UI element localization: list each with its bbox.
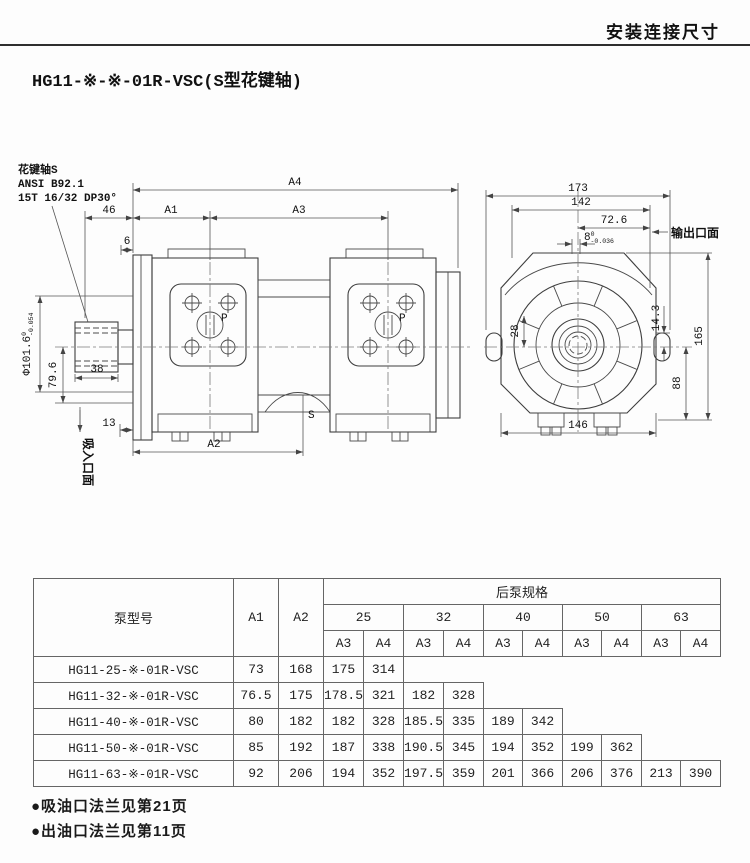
model-cell: HG11-32-※-01R-VSC	[34, 683, 234, 709]
table-row: HG11-40-※-01R-VSC80182182328185.53351893…	[34, 709, 721, 735]
dim-173: 173	[568, 183, 588, 195]
dim-a4: A4	[288, 177, 302, 189]
blank-cell	[404, 657, 721, 683]
dim-146: 146	[568, 420, 588, 432]
dim-a2: A2	[207, 439, 220, 451]
dim-cell: 314	[364, 657, 404, 683]
dim-cell: 352	[364, 761, 404, 787]
a2-cell: 182	[279, 709, 324, 735]
blank-cell	[484, 683, 721, 709]
spline-note-line1: 花键轴S	[18, 162, 58, 177]
catalog-page: 安装连接尺寸 HG11-※-※-01R-VSC(S型花键轴) 花键轴S ANSI…	[0, 0, 750, 863]
blank-cell	[642, 735, 721, 761]
model-cell: HG11-63-※-01R-VSC	[34, 761, 234, 787]
dim-cell: 335	[444, 709, 484, 735]
dim-165: 165	[694, 326, 706, 346]
col-header-a1: A1	[234, 579, 279, 657]
dim-cell: 178.5	[324, 683, 364, 709]
dim-s: S	[308, 410, 315, 422]
a2-cell: 168	[279, 657, 324, 683]
dim-72-6: 72.6	[601, 215, 627, 227]
a1-cell: 92	[234, 761, 279, 787]
dim-cell: 338	[364, 735, 404, 761]
a1-cell: 85	[234, 735, 279, 761]
sub-header: A4	[602, 631, 642, 657]
table-row: HG11-50-※-01R-VSC85192187338190.53451943…	[34, 735, 721, 761]
dim-cell: 328	[444, 683, 484, 709]
col-header-a2: A2	[279, 579, 324, 657]
dim-cell: 376	[602, 761, 642, 787]
dim-cell: 185.5	[404, 709, 444, 735]
outlet-face-label: 输出口面	[671, 225, 719, 240]
sub-header: A4	[444, 631, 484, 657]
spec-table: 泵型号 A1 A2 后泵规格 2532405063 A3A4A3A4A3A4A3…	[33, 578, 721, 787]
dim-cell: 182	[324, 709, 364, 735]
dim-79-6: 79.6	[48, 362, 60, 388]
dim-6: 6	[124, 236, 131, 248]
dim-cell: 206	[563, 761, 602, 787]
suction-face-label: 吸入口面	[81, 438, 95, 486]
sub-header: A3	[324, 631, 364, 657]
a1-cell: 80	[234, 709, 279, 735]
dim-a3: A3	[292, 205, 305, 217]
dim-dia101: Φ101.60-0.054	[21, 312, 35, 375]
dim-cell: 345	[444, 735, 484, 761]
dim-a1: A1	[164, 205, 178, 217]
dim-cell: 359	[444, 761, 484, 787]
a1-cell: 76.5	[234, 683, 279, 709]
spline-note-line2: ANSI B92.1	[18, 179, 84, 191]
table-row: HG11-25-※-01R-VSC73168175314	[34, 657, 721, 683]
model-cell: HG11-50-※-01R-VSC	[34, 735, 234, 761]
dim-cell: 321	[364, 683, 404, 709]
dim-cell: 362	[602, 735, 642, 761]
note-suction-flange: ●吸油口法兰见第21页	[31, 795, 188, 816]
size-header: 25	[324, 605, 404, 631]
port-label-p2: P	[399, 313, 406, 325]
a2-cell: 192	[279, 735, 324, 761]
front-view-drawing: 173 142 72.6 80-0.036 输出口面 28 14.3 165	[484, 183, 719, 437]
a1-cell: 73	[234, 657, 279, 683]
dim-cell: 201	[484, 761, 523, 787]
dim-cell: 342	[523, 709, 563, 735]
sub-header: A4	[364, 631, 404, 657]
technical-drawing: 花键轴S ANSI B92.1 15T 16/32 DP30°	[0, 0, 750, 540]
side-view-drawing: 花键轴S ANSI B92.1 15T 16/32 DP30°	[18, 162, 470, 486]
dim-cell: 199	[563, 735, 602, 761]
dim-cell: 190.5	[404, 735, 444, 761]
size-header: 50	[563, 605, 642, 631]
header-row-1: 泵型号 A1 A2 后泵规格	[34, 579, 721, 605]
a2-cell: 206	[279, 761, 324, 787]
table-row: HG11-63-※-01R-VSC92206194352197.53592013…	[34, 761, 721, 787]
dim-cell: 390	[681, 761, 721, 787]
dim-cell: 175	[324, 657, 364, 683]
size-header: 32	[404, 605, 484, 631]
dim-cell: 194	[324, 761, 364, 787]
dim-13: 13	[102, 418, 115, 430]
dim-cell: 213	[642, 761, 681, 787]
size-header: 40	[484, 605, 563, 631]
dim-cell: 187	[324, 735, 364, 761]
dim-142: 142	[571, 197, 591, 209]
sub-header: A3	[484, 631, 523, 657]
dim-8: 80-0.036	[584, 231, 614, 245]
port-label-p1: P	[221, 313, 228, 325]
size-header: 63	[642, 605, 721, 631]
dim-46: 46	[102, 205, 115, 217]
dim-88: 88	[672, 376, 684, 389]
model-cell: HG11-40-※-01R-VSC	[34, 709, 234, 735]
spline-note-line3: 15T 16/32 DP30°	[18, 193, 117, 205]
dim-cell: 182	[404, 683, 444, 709]
dim-cell: 194	[484, 735, 523, 761]
dim-cell: 197.5	[404, 761, 444, 787]
note-outlet-flange: ●出油口法兰见第11页	[31, 820, 187, 841]
a2-cell: 175	[279, 683, 324, 709]
dim-cell: 366	[523, 761, 563, 787]
dim-cell: 328	[364, 709, 404, 735]
dim-38: 38	[90, 364, 103, 376]
col-header-model: 泵型号	[34, 579, 234, 657]
model-cell: HG11-25-※-01R-VSC	[34, 657, 234, 683]
sub-header: A3	[642, 631, 681, 657]
group-header-rear-pump: 后泵规格	[324, 579, 721, 605]
sub-header: A3	[404, 631, 444, 657]
sub-header: A4	[681, 631, 721, 657]
sub-header: A4	[523, 631, 563, 657]
table-row: HG11-32-※-01R-VSC76.5175178.5321182328	[34, 683, 721, 709]
dim-14-3: 14.3	[651, 305, 663, 331]
blank-cell	[563, 709, 721, 735]
dim-cell: 352	[523, 735, 563, 761]
dim-cell: 189	[484, 709, 523, 735]
sub-header: A3	[563, 631, 602, 657]
dim-28: 28	[510, 324, 522, 337]
